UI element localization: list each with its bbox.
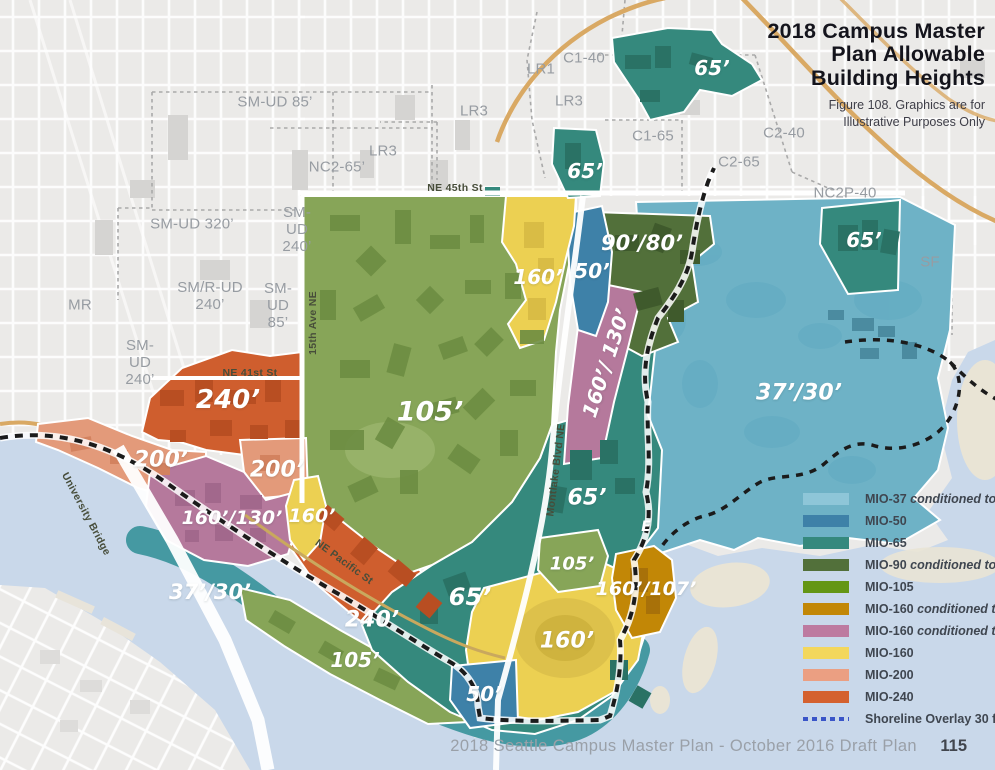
footer-caption: 2018 Seattle Campus Master Plan - Octobe… [450,737,917,756]
legend-condition: conditioned to 107 [914,602,995,616]
legend-row: MIO-90 conditioned to 80 [803,554,993,576]
map-subtitle-line: Figure 108. Graphics are for [655,97,985,114]
map-title-line: Building Heights [655,67,985,90]
legend-condition: conditioned to 130 [914,624,995,638]
zone-mio105-small [538,530,608,592]
legend-label: MIO-105 [865,580,914,594]
legend-swatch [803,581,849,593]
legend-row: MIO-160 [803,642,993,664]
stadium-field [535,615,595,661]
legend-swatch [803,625,849,637]
map-title-line: 2018 Campus Master [655,20,985,43]
campus-master-plan-map-page: 65’65’90’/80’160’50’65’160’/ 130’37’/30’… [0,0,995,770]
legend-row: MIO-37 conditioned to 30 [803,488,993,510]
legend-label: MIO-160 conditioned to 107 [865,602,995,616]
legend-label: MIO-90 conditioned to 80 [865,558,995,572]
legend-swatch [803,537,849,549]
map-subtitle-line: Illustrative Purposes Only [655,114,985,131]
legend-swatch [803,647,849,659]
legend-condition: conditioned to 80 [907,558,995,572]
shoreline-dash-swatch [803,717,849,721]
legend-label: MIO-50 [865,514,907,528]
legend-label: MIO-65 [865,536,907,550]
map-title: 2018 Campus MasterPlan AllowableBuilding… [655,20,985,90]
legend-label: MIO-240 [865,690,914,704]
legend-swatch [803,559,849,571]
legend-swatch [803,669,849,681]
legend-row: MIO-240 [803,686,993,708]
legend-condition: conditioned to 30 [907,492,995,506]
legend-label: MIO-160 conditioned to 130 [865,624,995,638]
map-title-block: 2018 Campus MasterPlan AllowableBuilding… [655,20,985,131]
legend-swatch [803,493,849,505]
legend-label: MIO-160 [865,646,914,660]
legend-label: MIO-37 conditioned to 30 [865,492,995,506]
legend-label: MIO-200 [865,668,914,682]
page-number: 115 [940,737,967,756]
legend-row: MIO-50 [803,510,993,532]
legend-row: MIO-65 [803,532,993,554]
legend-row: MIO-160 conditioned to 130 [803,620,993,642]
legend-swatch [803,603,849,615]
legend-row-shoreline: Shoreline Overlay 30 ft [803,708,993,730]
legend-row: MIO-160 conditioned to 107 [803,598,993,620]
legend-swatch [803,691,849,703]
legend-row: MIO-105 [803,576,993,598]
legend-row: MIO-200 [803,664,993,686]
map-title-line: Plan Allowable [655,43,985,66]
legend-label: Shoreline Overlay 30 ft [865,712,995,726]
legend: MIO-37 conditioned to 30MIO-50MIO-65MIO-… [803,488,993,730]
map-subtitle: Figure 108. Graphics are forIllustrative… [655,97,985,131]
legend-rows: MIO-37 conditioned to 30MIO-50MIO-65MIO-… [803,488,993,730]
legend-swatch [803,515,849,527]
